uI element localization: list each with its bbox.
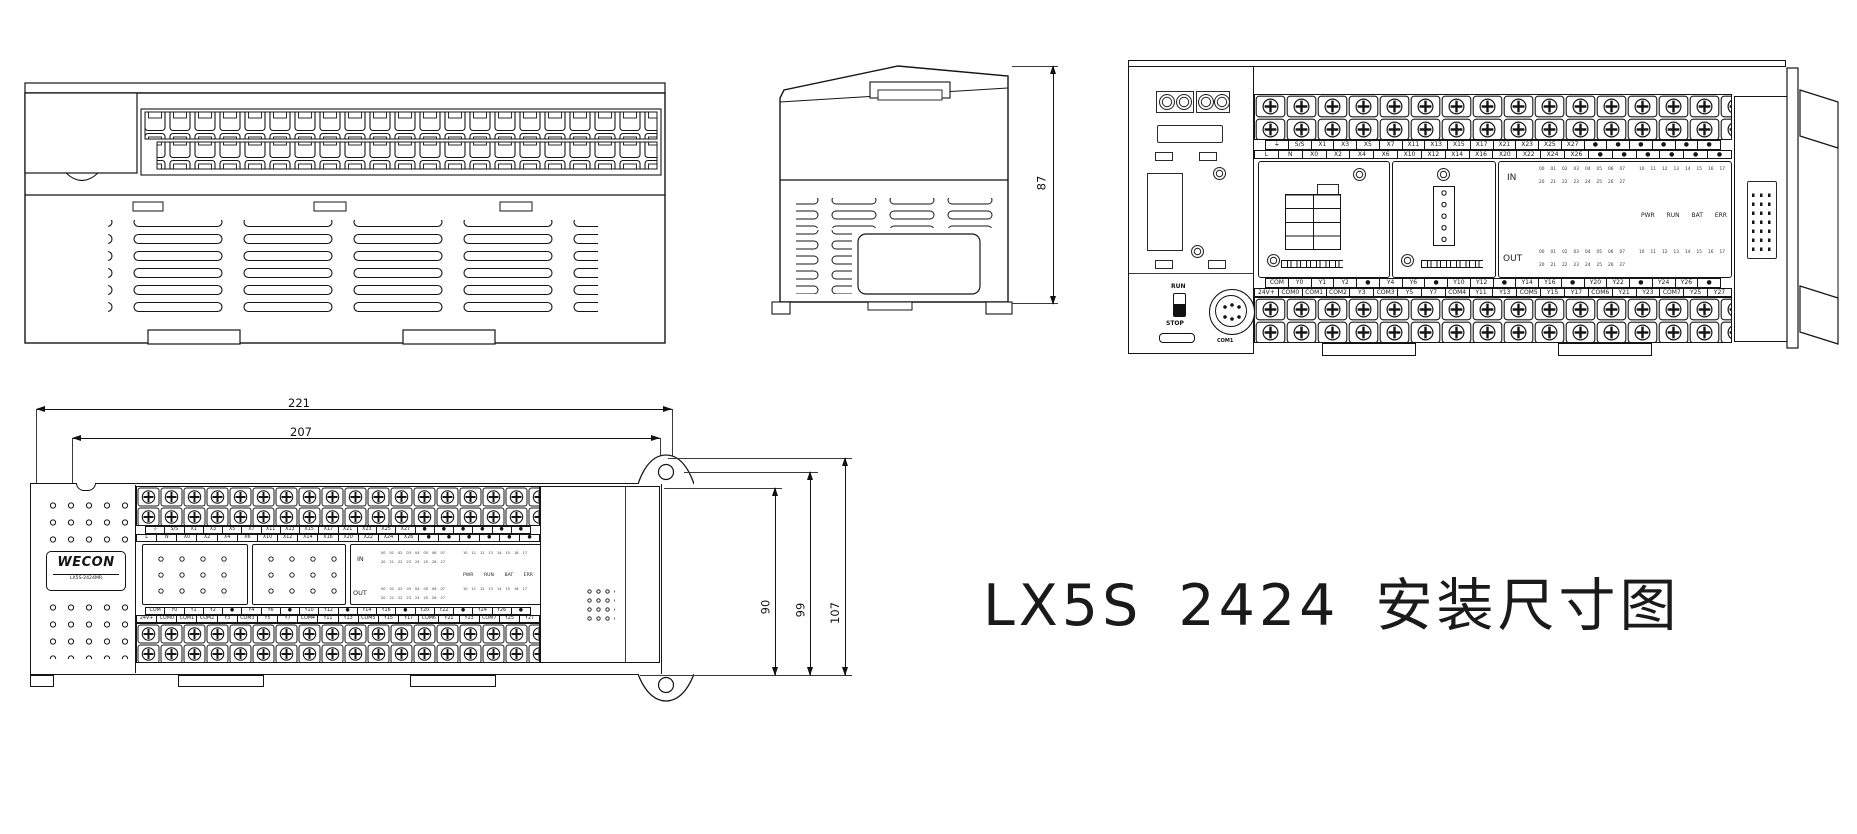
led-number: 13 <box>489 587 493 591</box>
terminal-label: Y2 <box>204 608 223 614</box>
cap-divider <box>625 487 626 662</box>
status-led-row: PWRRUNBATERR <box>463 573 533 578</box>
terminal-label: Y27 <box>1708 289 1731 297</box>
terminal-label: Y6 <box>1403 279 1426 287</box>
led-number: 17 <box>523 587 527 591</box>
din-clip[interactable] <box>1322 343 1416 356</box>
terminal-label: X16 <box>1470 151 1494 159</box>
terminal-label: Y5 <box>1398 289 1422 297</box>
drawing-title: LX5S 2424 安装尺寸图 <box>983 560 1681 642</box>
led-number: 10 <box>463 587 467 591</box>
output-label-row-lower: 24V+COM0COM1COM2Y3COM3Y5Y7COM4Y11Y13COM5… <box>136 615 540 623</box>
led-number: 16 <box>1708 250 1713 255</box>
expansion-slot-2 <box>252 544 346 605</box>
vent-holes <box>261 551 339 597</box>
dim-label-mounting-height: 99 <box>793 601 807 620</box>
terminal-label: COM7 <box>1660 289 1684 297</box>
status-led-label: RUN <box>1667 212 1680 219</box>
led-number: 13 <box>1674 167 1679 172</box>
led-number: 21 <box>390 560 394 564</box>
led-number: 15 <box>1697 250 1702 255</box>
out-led-row-c: 2021222324252627 <box>1539 263 1625 268</box>
input-terminal-strip[interactable] <box>136 486 540 526</box>
led-indicator-panel: IN 0001020304050607 1011121314151617 202… <box>1498 161 1732 278</box>
terminal-label: N <box>157 535 177 541</box>
led-number: 01 <box>1551 250 1556 255</box>
led-number: 20 <box>381 596 385 600</box>
terminal-label: COM4 <box>1446 289 1470 297</box>
dim-label-overall-height: 107 <box>828 600 842 626</box>
terminal-label: Y0 <box>1289 279 1312 287</box>
five-pin-connector <box>1433 186 1455 246</box>
in-led-row-c: 2021222324252627 <box>381 560 445 564</box>
terminal-label: COM0 <box>157 616 177 622</box>
terminal-label: X4 <box>218 535 238 541</box>
power-terminal-screw <box>1198 94 1214 110</box>
terminal-label: ● <box>1585 141 1608 149</box>
led-number: 05 <box>424 587 428 591</box>
terminal-label: X6 <box>238 535 258 541</box>
led-indicator-panel: IN 0001020304050607 1011121314151617 202… <box>350 544 546 605</box>
terminal-label: Y3 <box>218 616 238 622</box>
terminal-label: Y24 <box>473 608 492 614</box>
usb-port[interactable] <box>1159 333 1195 343</box>
slot-screw <box>1267 254 1280 267</box>
led-number: 06 <box>432 587 436 591</box>
output-terminal-strip[interactable] <box>136 623 540 663</box>
output-label-row-upper: COMY0Y1Y2●Y4Y6●Y10Y12●Y14Y16●Y20Y22●Y24Y… <box>145 607 531 615</box>
vent-slot <box>1208 260 1226 269</box>
terminal-label: Y13 <box>1493 289 1517 297</box>
out-led-row-a: 0001020304050607 <box>1539 250 1625 255</box>
dim-line-90 <box>775 488 776 675</box>
terminal-label: Y5 <box>258 616 278 622</box>
slot-screw <box>1401 254 1414 267</box>
led-number: 20 <box>1539 263 1544 268</box>
terminal-label: X10 <box>1398 151 1422 159</box>
dim-label-overall-width: 221 <box>286 396 312 410</box>
terminal-label: COM3 <box>238 616 258 622</box>
terminal-label: ● <box>416 527 435 533</box>
led-number: 13 <box>1674 250 1679 255</box>
led-number: 11 <box>1651 167 1656 172</box>
led-number: 23 <box>1574 180 1579 185</box>
din-clip[interactable] <box>410 675 496 687</box>
terminal-label: COM4 <box>298 616 318 622</box>
terminal-label: ⏚ <box>1266 141 1289 149</box>
terminal-label: Y15 <box>379 616 399 622</box>
out-led-row-c: 2021222324252627 <box>381 596 445 600</box>
led-number: 03 <box>407 551 411 555</box>
terminal-label: ● <box>435 527 454 533</box>
led-number: 17 <box>1720 167 1725 172</box>
led-number: 27 <box>441 596 445 600</box>
led-number: 03 <box>1574 167 1579 172</box>
output-label-row-lower: 24V+COM0COM1COM2Y3COM3Y5Y7COM4Y11Y13COM5… <box>1254 288 1732 298</box>
led-number: 21 <box>1551 180 1556 185</box>
expansion-bus-connector <box>1747 181 1777 259</box>
input-terminal-strip[interactable] <box>1254 94 1732 140</box>
vent-holes <box>151 551 241 597</box>
vent-holes <box>44 497 130 547</box>
led-number: 00 <box>1539 167 1544 172</box>
terminal-label: ● <box>1676 141 1699 149</box>
terminal-label: Y4 <box>242 608 261 614</box>
terminal-label: COM1 <box>1303 289 1327 297</box>
terminal-label: COM7 <box>480 616 500 622</box>
terminal-label: X4 <box>1350 151 1374 159</box>
terminal-label: X27 <box>1562 141 1585 149</box>
terminal-label: ● <box>460 535 480 541</box>
terminal-label: ● <box>512 527 530 533</box>
led-number: 12 <box>480 551 484 555</box>
slot-screw <box>1353 168 1366 181</box>
terminal-label: X15 <box>1448 141 1471 149</box>
terminal-label: ● <box>1630 141 1653 149</box>
dim-line-87 <box>1053 66 1054 304</box>
led-number: 27 <box>441 560 445 564</box>
terminal-label: ● <box>520 535 539 541</box>
in-led-row-b: 1011121314151617 <box>1639 167 1725 172</box>
terminal-label: COM5 <box>1517 289 1541 297</box>
led-number: 02 <box>398 551 402 555</box>
led-number: 07 <box>1620 250 1625 255</box>
vent-slot <box>1155 152 1173 161</box>
led-number: 24 <box>415 560 419 564</box>
bus-connector-pins <box>1752 188 1771 251</box>
status-led-label: RUN <box>484 573 494 578</box>
terminal-label: X26 <box>1565 151 1589 159</box>
led-number: 27 <box>1620 263 1625 268</box>
extension-line <box>672 409 673 457</box>
led-number: 12 <box>1662 167 1667 172</box>
led-number: 26 <box>1608 263 1613 268</box>
terminal-label: X11 <box>1403 141 1426 149</box>
terminal-label: ● <box>512 608 530 614</box>
led-number: 02 <box>1562 167 1567 172</box>
terminal-label: X23 <box>1516 141 1539 149</box>
extension-line <box>640 675 852 676</box>
led-number: 23 <box>407 560 411 564</box>
extension-line <box>72 438 73 483</box>
terminal-label: COM5 <box>359 616 379 622</box>
terminal-label: X5 <box>1357 141 1380 149</box>
led-number: 01 <box>1551 167 1556 172</box>
dim-line-221 <box>36 409 672 410</box>
terminal-label: Y6 <box>262 608 281 614</box>
terminal-label: Y14 <box>1516 279 1539 287</box>
terminal-label: S/S <box>1289 141 1312 149</box>
terminal-label: X0 <box>1303 151 1327 159</box>
terminal-label: ● <box>1684 151 1708 159</box>
run-label: RUN <box>1171 283 1186 290</box>
led-number: 01 <box>390 551 394 555</box>
led-number: 14 <box>497 587 501 591</box>
terminal-label: ● <box>439 535 459 541</box>
extension-line <box>36 409 37 483</box>
in-label: IN <box>1507 173 1516 183</box>
extension-line <box>684 472 818 473</box>
terminal-label: X3 <box>204 527 223 533</box>
terminal-label: ● <box>1589 151 1613 159</box>
terminal-label: ● <box>1357 279 1380 287</box>
contact-dots <box>585 587 615 621</box>
led-number: 04 <box>1585 167 1590 172</box>
terminal-label: X1 <box>185 527 204 533</box>
led-number: 24 <box>415 596 419 600</box>
com1-connector[interactable] <box>1209 289 1255 335</box>
terminal-label: ● <box>223 608 242 614</box>
terminal-label: ● <box>1698 141 1720 149</box>
led-number: 02 <box>398 587 402 591</box>
terminal-label: ● <box>480 535 500 541</box>
terminal-label: X13 <box>281 527 300 533</box>
right-end-cap <box>540 486 660 663</box>
terminal-label: COM6 <box>1589 289 1613 297</box>
status-led-label: PWR <box>463 573 474 578</box>
terminal-label: 24V+ <box>1255 289 1279 297</box>
dim-line-207 <box>72 438 660 439</box>
terminal-label: X7 <box>1380 141 1403 149</box>
module-divider <box>1129 273 1253 274</box>
led-number: 07 <box>441 551 445 555</box>
din-clip[interactable] <box>1558 343 1652 356</box>
terminal-label: ● <box>1425 279 1448 287</box>
led-number: 17 <box>523 551 527 555</box>
terminal-label: L <box>1255 151 1279 159</box>
vent-slot <box>1199 152 1217 161</box>
terminal-label: Y4 <box>1380 279 1403 287</box>
expansion-port-cover <box>1147 173 1183 251</box>
din-clip[interactable] <box>178 675 264 687</box>
led-number: 11 <box>472 587 476 591</box>
led-number: 25 <box>1597 180 1602 185</box>
led-number: 06 <box>432 551 436 555</box>
out-led-row-a: 0001020304050607 <box>381 587 445 591</box>
terminal-label: ● <box>1660 151 1684 159</box>
in-led-row-a: 0001020304050607 <box>1539 167 1625 172</box>
led-number: 21 <box>390 596 394 600</box>
terminal-label: X21 <box>1494 141 1517 149</box>
led-number: 06 <box>1608 250 1613 255</box>
terminal-label: X10 <box>258 535 278 541</box>
led-number: 12 <box>480 587 484 591</box>
brand-name: WECON <box>47 552 125 574</box>
run-stop-switch[interactable] <box>1173 293 1186 317</box>
dim-label-body-height: 90 <box>758 598 772 617</box>
terminal-label: X21 <box>339 527 358 533</box>
extension-line <box>668 458 852 459</box>
led-number: 22 <box>1562 180 1567 185</box>
terminal-label: ● <box>1637 151 1661 159</box>
power-terminal-screw <box>1176 94 1192 110</box>
terminal-label: X12 <box>278 535 298 541</box>
led-number: 14 <box>1685 250 1690 255</box>
terminal-label: X5 <box>223 527 242 533</box>
terminal-label: ● <box>493 527 512 533</box>
terminal-label: Y25 <box>500 616 520 622</box>
led-number: 13 <box>489 551 493 555</box>
dim-label-side-height: 87 <box>1034 174 1048 193</box>
terminal-label: ● <box>500 535 520 541</box>
led-number: 21 <box>1551 263 1556 268</box>
status-led-label: PWR <box>1641 212 1655 219</box>
terminal-label: X24 <box>1541 151 1565 159</box>
terminal-label: X20 <box>1493 151 1517 159</box>
terminal-label: X2 <box>1327 151 1351 159</box>
power-terminal-screw <box>1214 94 1230 110</box>
led-number: 00 <box>381 587 385 591</box>
in-label: IN <box>357 555 364 563</box>
led-number: 05 <box>424 551 428 555</box>
status-led-label: BAT <box>504 573 513 578</box>
led-number: 25 <box>1597 263 1602 268</box>
led-number: 26 <box>432 596 436 600</box>
top-view-drawing <box>18 78 670 350</box>
output-terminal-strip[interactable] <box>1254 297 1732 343</box>
detachable-terminal-block <box>1285 194 1341 250</box>
terminal-label: ● <box>473 527 492 533</box>
terminal-label: Y21 <box>439 616 459 622</box>
terminal-label: ● <box>1630 279 1653 287</box>
input-label-row-lower: LNX0X2X4X6X10X12X14X16X20X22X24X26●●●●●● <box>1254 150 1732 160</box>
led-number: 12 <box>1662 250 1667 255</box>
led-number: 04 <box>1585 250 1590 255</box>
terminal-label: Y25 <box>1684 289 1708 297</box>
terminal-label: ● <box>1653 141 1676 149</box>
terminal-label: COM0 <box>1279 289 1303 297</box>
out-led-row-b: 1011121314151617 <box>463 587 527 591</box>
led-number: 27 <box>1620 180 1625 185</box>
led-number: 23 <box>407 596 411 600</box>
terminal-label: Y11 <box>1470 289 1494 297</box>
led-number: 15 <box>506 587 510 591</box>
terminal-label: Y12 <box>1471 279 1494 287</box>
led-number: 00 <box>1539 250 1544 255</box>
led-number: 03 <box>407 587 411 591</box>
led-number: 05 <box>1597 250 1602 255</box>
terminal-label: ● <box>1708 151 1731 159</box>
terminal-label: X17 <box>1471 141 1494 149</box>
status-led-label: ERR <box>524 573 533 578</box>
terminal-label: COM1 <box>177 616 197 622</box>
terminal-label: X27 <box>396 527 415 533</box>
terminal-label: X23 <box>358 527 377 533</box>
led-number: 03 <box>1574 250 1579 255</box>
terminal-label: X25 <box>377 527 396 533</box>
terminal-label: Y20 <box>416 608 435 614</box>
terminal-label: Y21 <box>1613 289 1637 297</box>
terminal-label: Y7 <box>278 616 298 622</box>
expansion-slot-2 <box>1392 161 1496 278</box>
terminal-label: COM <box>1266 279 1289 287</box>
out-led-row-b: 1011121314151617 <box>1639 250 1725 255</box>
led-number: 17 <box>1720 250 1725 255</box>
led-number: 04 <box>415 551 419 555</box>
terminal-label: X14 <box>1446 151 1470 159</box>
terminal-label: Y11 <box>318 616 338 622</box>
terminal-label: X26 <box>399 535 419 541</box>
terminal-label: Y17 <box>399 616 419 622</box>
terminal-label: Y16 <box>377 608 396 614</box>
terminal-label: ● <box>281 608 300 614</box>
out-label: OUT <box>1503 254 1522 264</box>
led-number: 11 <box>1651 250 1656 255</box>
led-number: 22 <box>398 560 402 564</box>
led-number: 24 <box>1585 263 1590 268</box>
in-led-row-a: 0001020304050607 <box>381 551 445 555</box>
input-label-row-upper: ⏚S/SX1X3X5X7X11X13X15X17X21X23X25X27●●●●… <box>145 526 531 534</box>
terminal-label: Y1 <box>185 608 204 614</box>
led-number: 26 <box>432 560 436 564</box>
terminal-label: ● <box>339 608 358 614</box>
branding-panel: WECON LX5S-2424MR <box>32 485 136 673</box>
led-number: 04 <box>415 587 419 591</box>
led-number: 26 <box>1608 180 1613 185</box>
in-led-row-c: 2021222324252627 <box>1539 180 1625 185</box>
led-number: 07 <box>441 587 445 591</box>
terminal-label: COM2 <box>197 616 217 622</box>
terminal-label: COM6 <box>419 616 439 622</box>
terminal-label: Y10 <box>300 608 319 614</box>
name-plate <box>1157 125 1223 143</box>
right-end-cap <box>1734 96 1788 342</box>
side-view-drawing <box>770 58 1070 318</box>
front-view-large: RUN STOP COM1 ⏚S/SX1X3X5X7X11X13X15X17X2… <box>1126 60 1857 360</box>
expansion-slot-1 <box>142 544 248 605</box>
terminal-label: Y22 <box>435 608 454 614</box>
led-number: 16 <box>514 551 518 555</box>
status-led-label: ERR <box>1715 212 1727 219</box>
led-number: 10 <box>463 551 467 555</box>
terminal-label: Y14 <box>358 608 377 614</box>
terminal-label: COM3 <box>1374 289 1398 297</box>
terminal-label: Y16 <box>1539 279 1562 287</box>
status-led-label: BAT <box>1692 212 1703 219</box>
led-number: 14 <box>1685 167 1690 172</box>
terminal-label: Y27 <box>520 616 539 622</box>
terminal-label: ● <box>1607 141 1630 149</box>
terminal-label: COM2 <box>1327 289 1351 297</box>
terminal-label: X7 <box>242 527 261 533</box>
terminal-label: ● <box>419 535 439 541</box>
output-label-row-upper: COMY0Y1Y2●Y4Y6●Y10Y12●Y14Y16●Y20Y22●Y24Y… <box>1265 278 1721 288</box>
terminal-label: X13 <box>1425 141 1448 149</box>
terminal-label: X17 <box>319 527 338 533</box>
led-number: 15 <box>506 551 510 555</box>
terminal-label: ● <box>1698 279 1720 287</box>
stop-label: STOP <box>1166 320 1184 327</box>
terminal-label: ● <box>396 608 415 614</box>
out-label: OUT <box>353 589 367 597</box>
terminal-label: X12 <box>1422 151 1446 159</box>
led-number: 05 <box>1597 167 1602 172</box>
din-rail-bracket <box>1786 64 1857 356</box>
expansion-slot-1 <box>1258 161 1390 278</box>
led-number: 22 <box>1562 263 1567 268</box>
terminal-label: Y22 <box>1607 279 1630 287</box>
terminal-label: Y23 <box>460 616 480 622</box>
in-led-row-b: 1011121314151617 <box>463 551 527 555</box>
terminal-label: Y2 <box>1334 279 1357 287</box>
led-number: 16 <box>1708 167 1713 172</box>
cpu-left-module: RUN STOP COM1 <box>1128 66 1254 354</box>
vent-slot <box>1155 260 1173 269</box>
terminal-label: X3 <box>1334 141 1357 149</box>
terminal-label: Y10 <box>1448 279 1471 287</box>
terminal-label: Y26 <box>493 608 512 614</box>
input-label-row-upper: ⏚S/SX1X3X5X7X11X13X15X17X21X23X25X27●●●●… <box>1265 140 1721 150</box>
